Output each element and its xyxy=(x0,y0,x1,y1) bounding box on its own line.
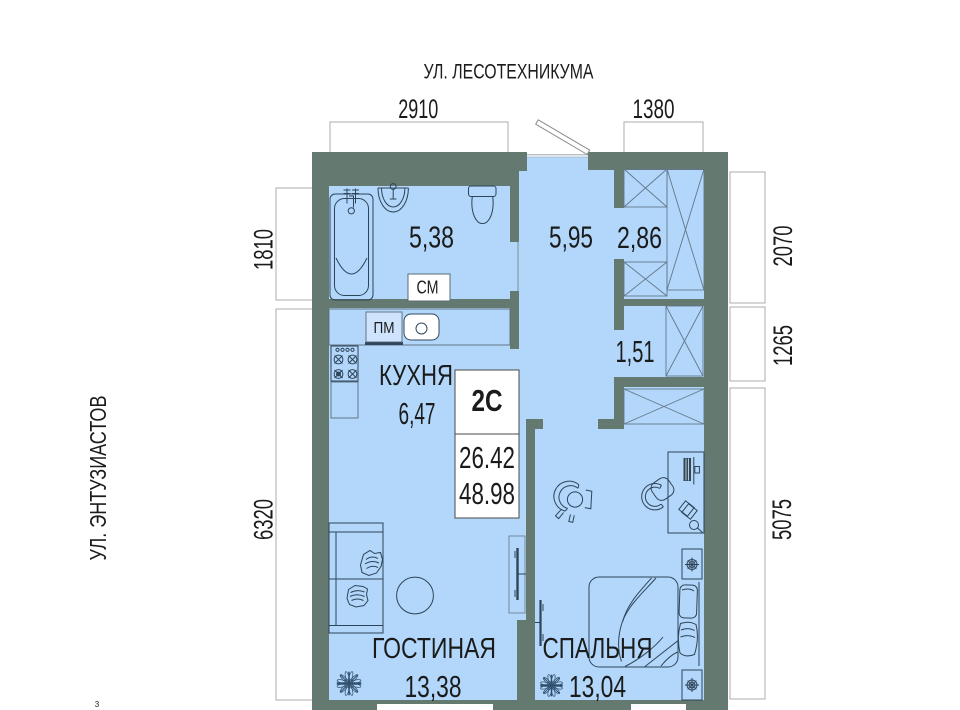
svg-text:УЛ. ЭНТУЗИАСТОВ: УЛ. ЭНТУЗИАСТОВ xyxy=(85,396,111,561)
svg-text:1265: 1265 xyxy=(768,325,798,366)
svg-text:КУХНЯ: КУХНЯ xyxy=(379,360,453,392)
svg-text:5075: 5075 xyxy=(767,499,797,540)
svg-text:ГОСТИНАЯ: ГОСТИНАЯ xyxy=(372,633,496,665)
svg-text:6,47: 6,47 xyxy=(399,396,436,431)
svg-text:2910: 2910 xyxy=(398,94,438,124)
svg-text:13,38: 13,38 xyxy=(405,669,462,704)
svg-text:1810: 1810 xyxy=(249,229,279,270)
svg-text:5,38: 5,38 xyxy=(409,220,454,255)
svg-text:26.42: 26.42 xyxy=(459,440,515,475)
svg-text:2070: 2070 xyxy=(768,226,798,267)
svg-text:ПМ: ПМ xyxy=(374,320,395,337)
svg-text:13,04: 13,04 xyxy=(569,669,626,704)
svg-text:5,95: 5,95 xyxy=(549,220,593,255)
svg-text:УЛ. ЛЕСОТЕХНИКУМА: УЛ. ЛЕСОТЕХНИКУМА xyxy=(424,61,594,84)
svg-text:48.98: 48.98 xyxy=(459,476,515,511)
svg-text:СМ: СМ xyxy=(417,278,439,298)
svg-text:2,86: 2,86 xyxy=(617,220,662,255)
svg-text:СПАЛЬНЯ: СПАЛЬНЯ xyxy=(543,633,653,665)
svg-text:1380: 1380 xyxy=(633,94,675,124)
svg-text:6320: 6320 xyxy=(249,499,279,540)
svg-text:3: 3 xyxy=(95,700,100,709)
svg-text:1,51: 1,51 xyxy=(616,334,655,369)
svg-text:2С: 2С xyxy=(472,383,503,418)
